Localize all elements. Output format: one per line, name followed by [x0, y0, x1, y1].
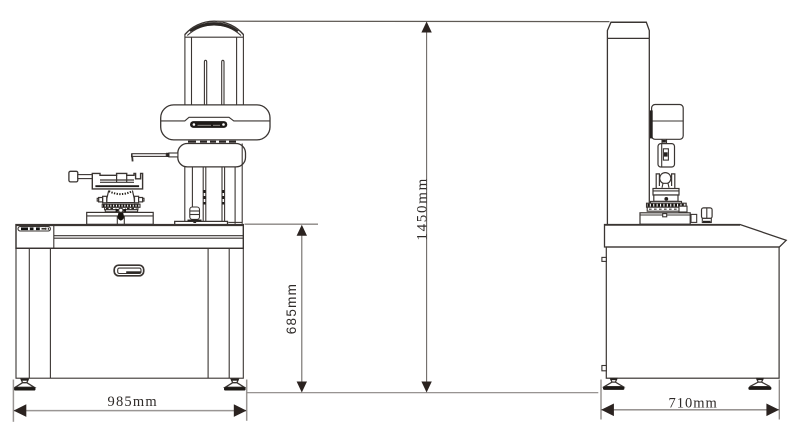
- svg-text:985mm: 985mm: [108, 394, 158, 410]
- svg-text:685mm: 685mm: [284, 283, 299, 335]
- svg-text:710mm: 710mm: [669, 396, 718, 412]
- svg-text:1450mm: 1450mm: [414, 177, 430, 241]
